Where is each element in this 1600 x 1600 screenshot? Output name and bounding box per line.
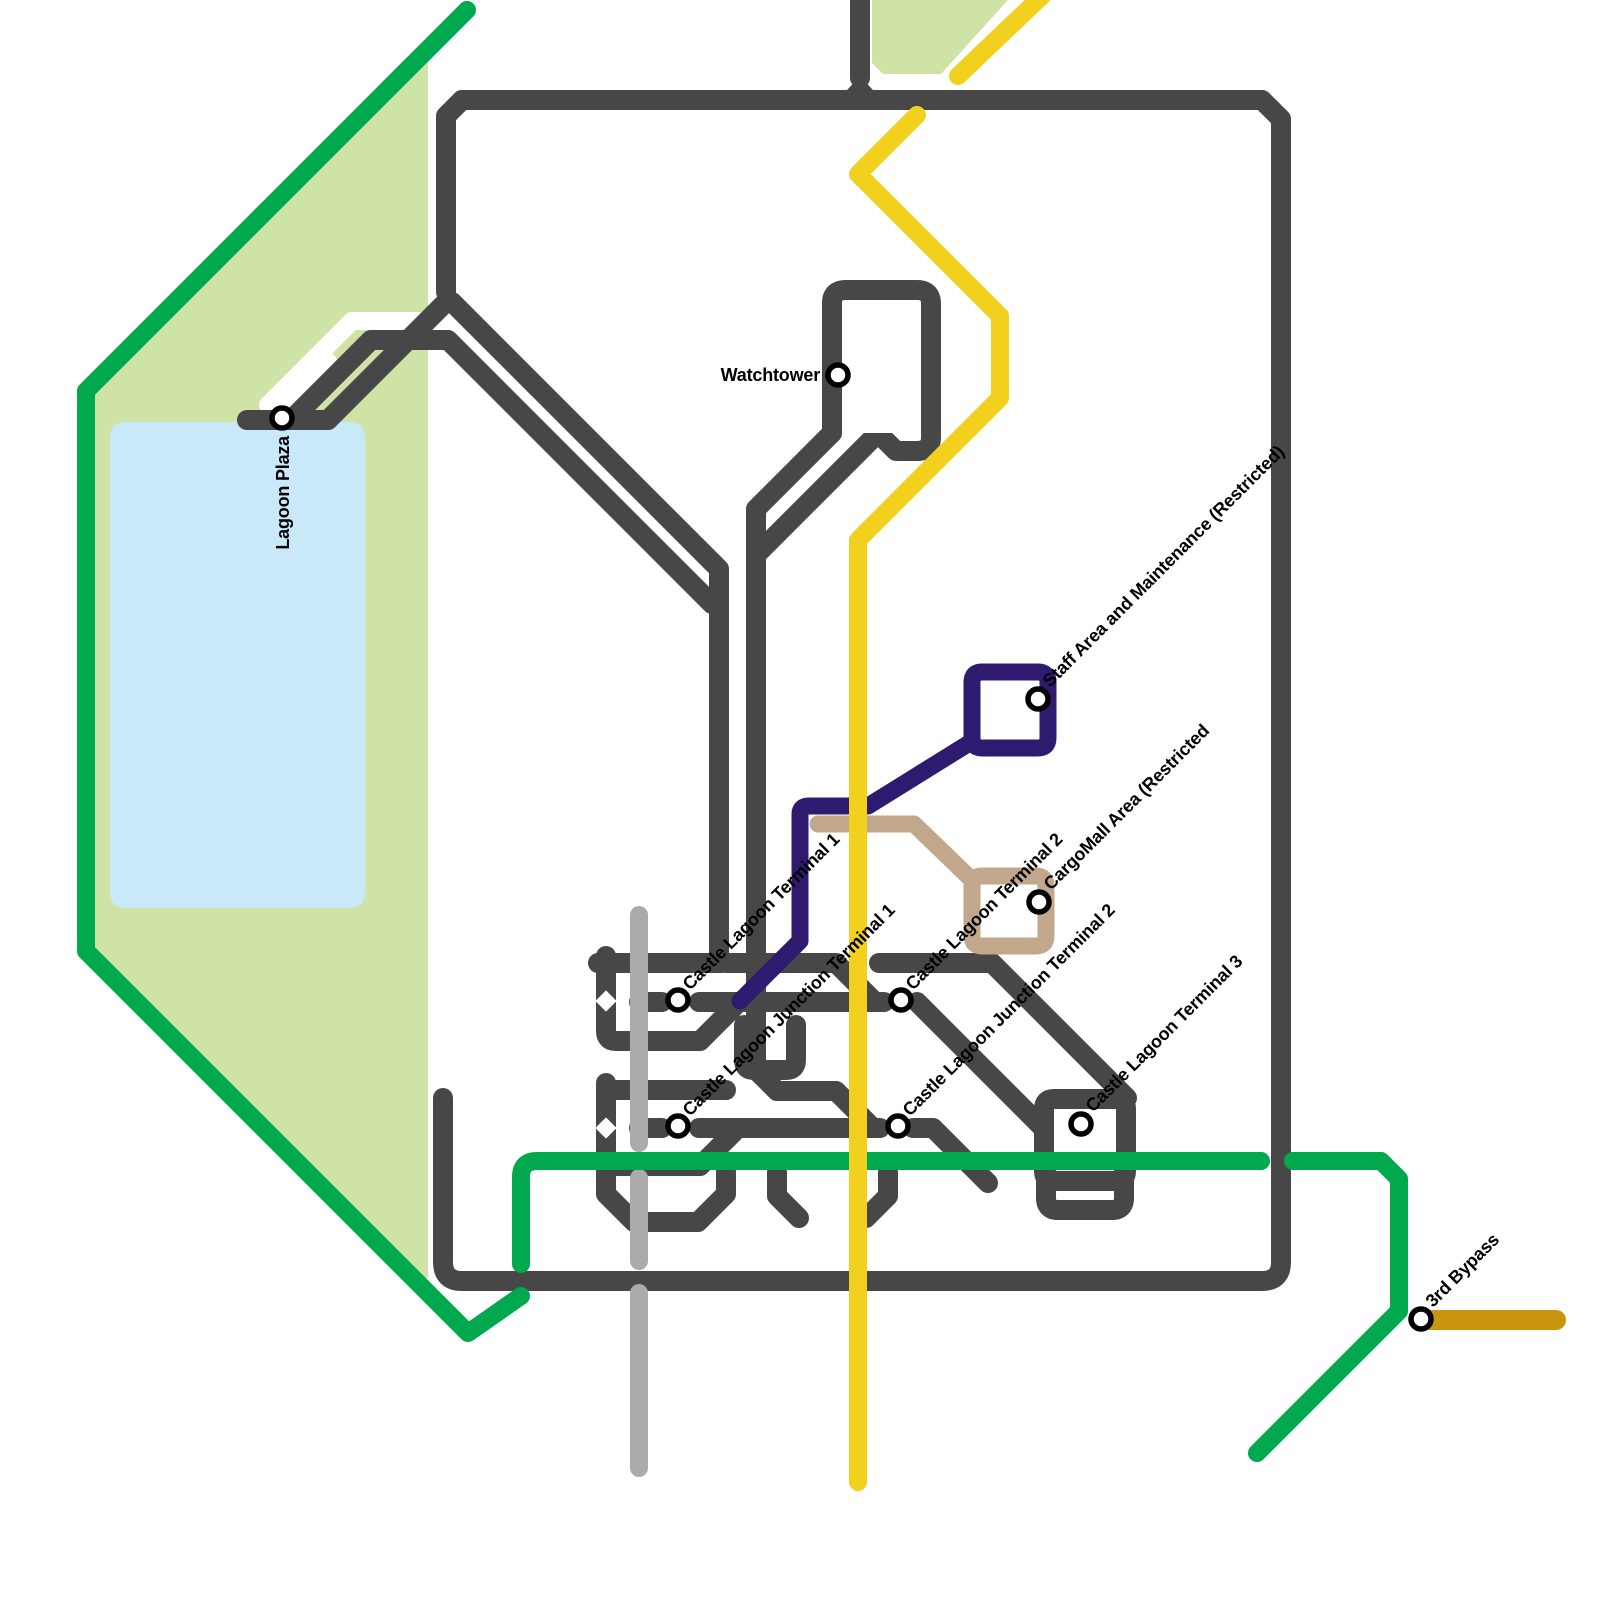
station-marker-castle-lagoon-terminal-2[interactable] [891, 990, 911, 1010]
transit-map-svg: Lagoon PlazaWatchtowerCastle Lagoon Term… [0, 0, 1600, 1600]
station-marker-castle-lagoon-junction-terminal-1[interactable] [668, 1116, 688, 1136]
station-marker-castle-lagoon-terminal-1[interactable] [668, 990, 688, 1010]
station-label-watchtower: Watchtower [721, 365, 821, 385]
station-marker-watchtower[interactable] [828, 365, 848, 385]
transit-map-canvas: Lagoon PlazaWatchtowerCastle Lagoon Term… [0, 0, 1600, 1600]
cutout-hole [852, 310, 910, 433]
station-marker-cargomall-area[interactable] [1029, 892, 1049, 912]
station-marker-castle-lagoon-terminal-3[interactable] [1071, 1114, 1091, 1134]
station-marker-staff-area-maintenance[interactable] [1028, 689, 1048, 709]
lagoon-lake [110, 422, 365, 908]
station-marker-castle-lagoon-junction-terminal-2[interactable] [888, 1116, 908, 1136]
station-marker-3rd-bypass[interactable] [1411, 1309, 1431, 1329]
station-label-lagoon-plaza: Lagoon Plaza [273, 435, 293, 550]
station-marker-lagoon-plaza[interactable] [272, 408, 292, 428]
